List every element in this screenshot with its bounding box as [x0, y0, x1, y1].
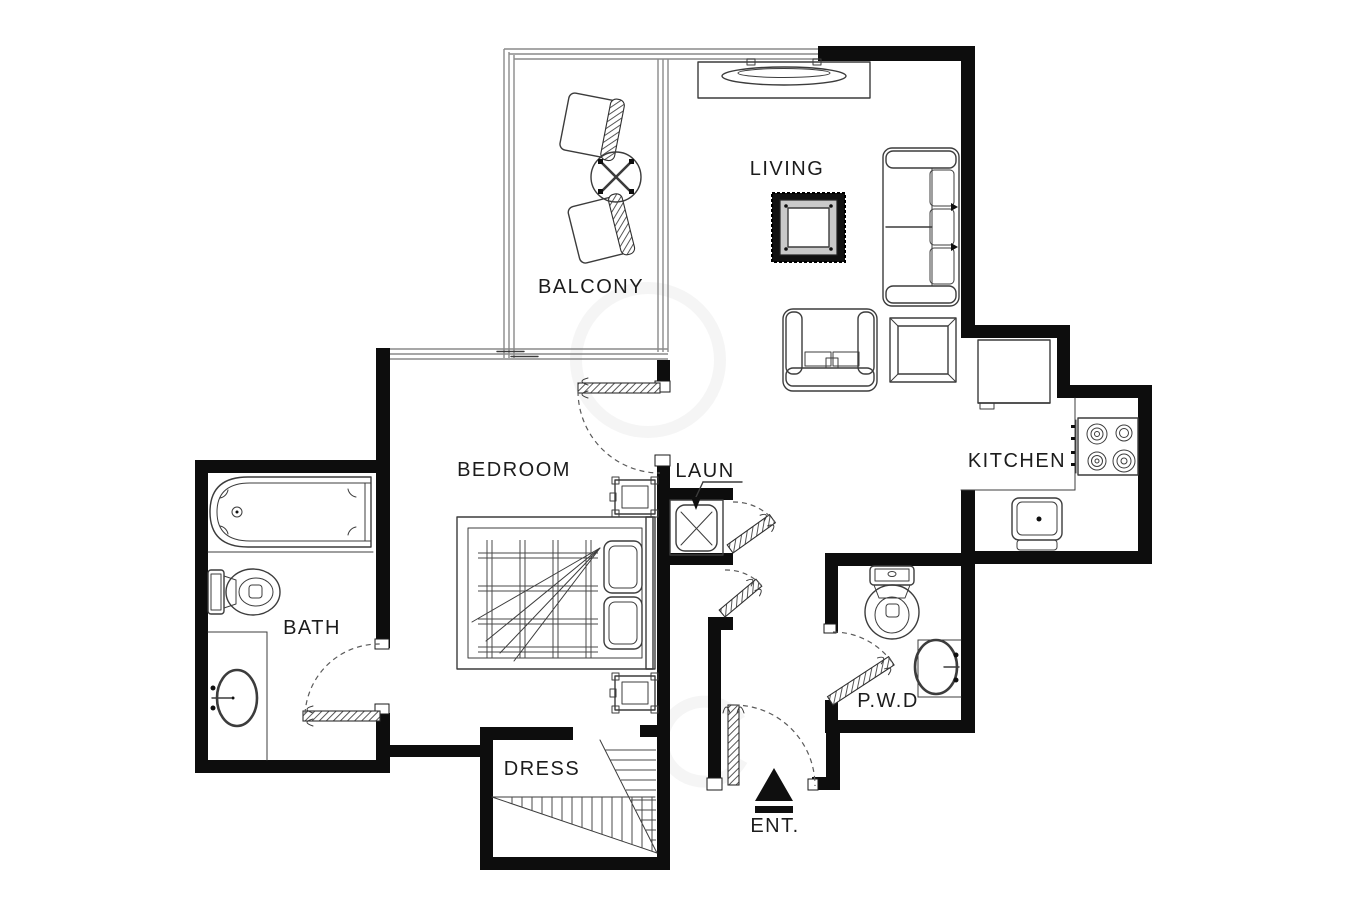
floor-plan-page: BALCONY LIVING KITCHEN BEDROOM BATH LAUN… [0, 0, 1350, 900]
wall-segment [825, 553, 965, 566]
wall-segment [377, 745, 482, 757]
wall-segment [480, 727, 573, 740]
framed-decor-table [772, 193, 845, 262]
wall-segment [1138, 385, 1152, 564]
sofa [883, 148, 959, 306]
wall-segment [480, 857, 670, 870]
label-balcony: BALCONY [538, 276, 644, 298]
door-leaf [578, 383, 660, 393]
door-leaf [728, 705, 739, 785]
label-living: LIVING [750, 158, 825, 180]
label-kitchen: KITCHEN [968, 450, 1066, 472]
wall-segment [195, 760, 389, 773]
wall-segment [195, 460, 390, 473]
label-powder: P.W.D [857, 690, 919, 712]
balcony-chair-top [559, 90, 626, 162]
wall-segment [195, 460, 208, 773]
label-dress: DRESS [504, 758, 580, 780]
label-bath: BATH [283, 617, 341, 639]
wall-segment [961, 46, 975, 338]
wall-segment [708, 617, 721, 780]
wall-segment [1057, 385, 1152, 398]
door-leaf [303, 711, 380, 721]
floor-plan-drawing: BALCONY LIVING KITCHEN BEDROOM BATH LAUN… [0, 0, 1350, 900]
wall-segment [831, 720, 975, 733]
label-bedroom: BEDROOM [457, 459, 571, 481]
wall-segment [961, 551, 1152, 564]
wall-segment [961, 490, 975, 733]
fridge [978, 340, 1050, 409]
wall-segment [376, 348, 390, 648]
curved-tv [722, 67, 846, 85]
wall-segment [657, 465, 670, 737]
wall-segment [818, 46, 975, 61]
label-laundry: LAUN [675, 460, 734, 482]
wall-segment [657, 735, 670, 867]
stove [1071, 418, 1138, 475]
wall-segment [825, 553, 838, 633]
armchair [783, 309, 877, 391]
wall-segment [961, 325, 1070, 338]
wall-segment [708, 617, 733, 630]
label-entrance: ENT. [750, 815, 799, 837]
